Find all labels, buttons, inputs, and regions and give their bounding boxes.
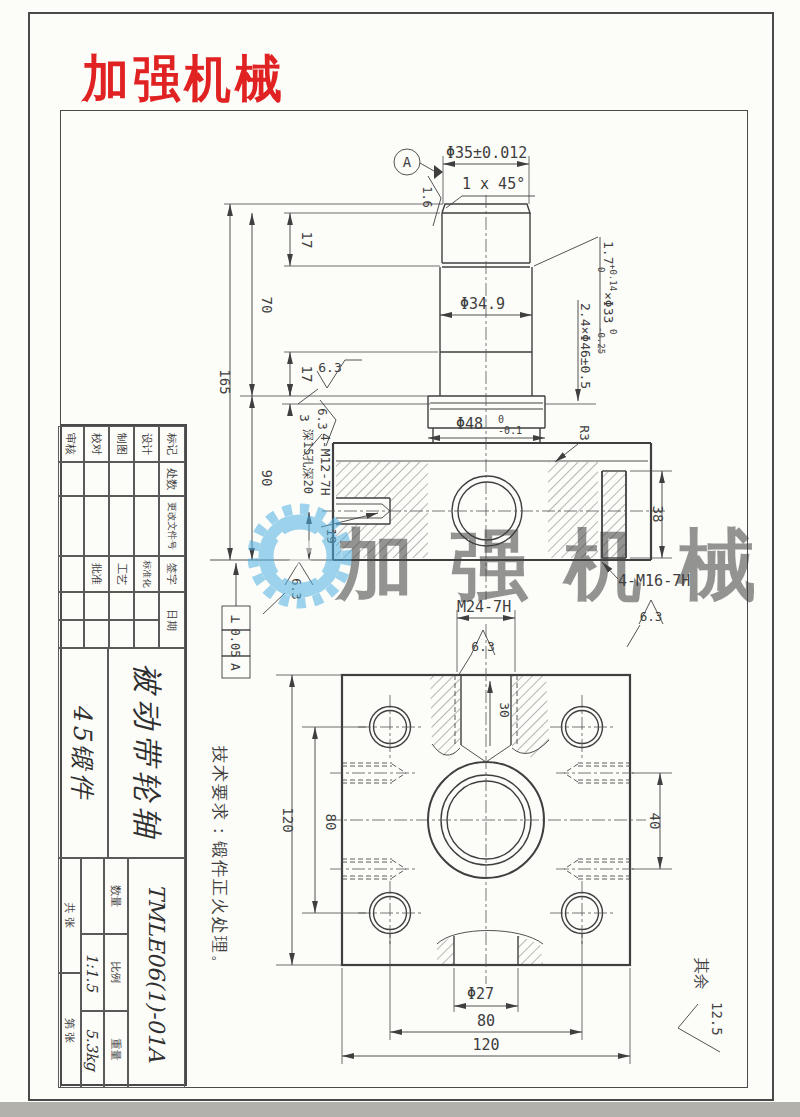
chamfer-note: 1 x 45° [462, 175, 525, 193]
svg-text:0: 0 [596, 267, 606, 272]
dim-groove1: 1.7 +0.14 0 ×Φ33 0 -0.25 [596, 241, 618, 354]
tb-sheet-total: 共 张 [58, 858, 81, 973]
tb-cell-blank [109, 592, 134, 620]
gdt-tolerance: 0.05 [228, 629, 242, 658]
datum-a-label: A [403, 154, 412, 170]
tb-cell-blank [134, 620, 159, 648]
gdt-datum: A [228, 663, 243, 671]
tb-header-weight: 重量 [104, 1011, 128, 1088]
dimension-lines [230, 164, 662, 1056]
note-m12: 4-M12-7H [318, 433, 333, 496]
tb-cell-blank [58, 620, 84, 648]
dim-80-left: 80 [323, 814, 339, 831]
dim-dia48: Φ48 [456, 415, 483, 433]
other-roughness-prefix: 其余 [692, 958, 711, 990]
dim-80-bottom: 80 [477, 1012, 495, 1030]
title-block: 标记 处数 更改文件号 签字 日期 设计 制图 校对 审核 标准化 工艺 批准 [60, 424, 187, 1086]
tb-row-check: 校对 [84, 426, 109, 462]
dim-70: 70 [259, 297, 275, 314]
tb-cell-blank [84, 592, 109, 620]
tb-value-weight: 5.3kg [81, 1011, 104, 1088]
dim-r3: R3 [577, 425, 592, 441]
other-roughness-value: 12.5 [709, 1002, 725, 1036]
tb-cell-blank [81, 858, 104, 934]
tb-material: 45锻件 [58, 648, 108, 858]
watermark-gear-icon [253, 509, 347, 603]
tb-header-quantity: 数量 [104, 858, 128, 934]
tb-row-draft: 制图 [109, 426, 134, 462]
tb-cell-blank [58, 556, 84, 592]
ra-63-d: 6.3 [640, 609, 663, 624]
watermark: 加强机械 [253, 509, 792, 610]
tb-part-name: 被动带轮轴 [108, 648, 185, 858]
watermark-text: 加强机械 [334, 520, 792, 610]
drawing-sheet: 加强机械 [0, 0, 800, 1117]
tb-cell-blank [109, 620, 134, 648]
svg-text:-0.1: -0.1 [498, 425, 522, 436]
tb-cell-blank [134, 496, 159, 556]
tb-cell-blank [109, 462, 134, 496]
dim-30: 30 [497, 702, 512, 718]
dim-40: 40 [647, 813, 663, 830]
ra-63-e: 6.3 [471, 639, 494, 654]
dim-dia35: Φ35±0.012 [446, 144, 527, 162]
tb-cell-blank [84, 620, 109, 648]
svg-text:0: 0 [498, 414, 504, 425]
dim-dia27: Φ27 [467, 985, 494, 1003]
scan-edge-artifact [0, 1102, 800, 1117]
svg-text:+0.14: +0.14 [608, 264, 618, 291]
tech-requirements: 技术要求：锻件正火处理。 [210, 745, 230, 974]
svg-text:0: 0 [608, 329, 618, 334]
dim-3: 3 [297, 414, 312, 422]
tb-header-signature: 签字 [159, 556, 185, 592]
dim-165: 165 [217, 369, 233, 394]
tb-row-audit: 审核 [58, 426, 84, 462]
ra-63-b: 6.3 [315, 408, 329, 430]
tb-drawing-number: TMLE06(1)-01A [128, 858, 185, 1088]
tb-header-scale: 比例 [104, 934, 128, 1011]
svg-text:1.7: 1.7 [601, 241, 616, 264]
tb-header-date: 日期 [159, 592, 185, 648]
tb-row-approve: 批准 [84, 556, 109, 592]
dim-17-top: 17 [299, 232, 315, 249]
tb-row-standardization: 标准化 [134, 556, 159, 592]
dim-dia349: Φ34.9 [460, 295, 505, 313]
tb-cell-blank [58, 496, 84, 556]
dim-90: 90 [259, 470, 275, 487]
tb-row-design: 设计 [134, 426, 159, 462]
ra-63-a: 6.3 [318, 360, 341, 375]
note-m12-depth: 深15孔深20 [301, 429, 315, 494]
dim-120-bottom: 120 [472, 1036, 499, 1054]
tb-row-process: 工艺 [109, 556, 134, 592]
tb-header-count: 处数 [159, 462, 185, 496]
tb-sheet-number: 第 张 [58, 973, 81, 1088]
tb-cell-blank [84, 496, 109, 556]
dim-120-left: 120 [280, 807, 296, 832]
tb-cell-blank [84, 462, 109, 496]
ra-16: 1.6 [420, 186, 434, 208]
dim-17-mid: 17 [299, 366, 315, 383]
svg-text:×Φ33: ×Φ33 [601, 292, 616, 323]
svg-text:-0.25: -0.25 [596, 327, 606, 354]
tb-cell-blank [58, 462, 84, 496]
tb-cell-blank [58, 592, 84, 620]
tb-header-mark: 标记 [159, 426, 185, 462]
tb-value-scale: 1:1.5 [81, 934, 104, 1011]
gdt-symbol: ⊥ [228, 615, 244, 623]
tb-cell-blank [134, 592, 159, 620]
tb-header-change-doc: 更改文件号 [159, 496, 185, 556]
tb-cell-blank [134, 462, 159, 496]
dim-groove2: 2.4×Φ46±0.5 [578, 303, 593, 389]
tb-cell-blank [109, 496, 134, 556]
